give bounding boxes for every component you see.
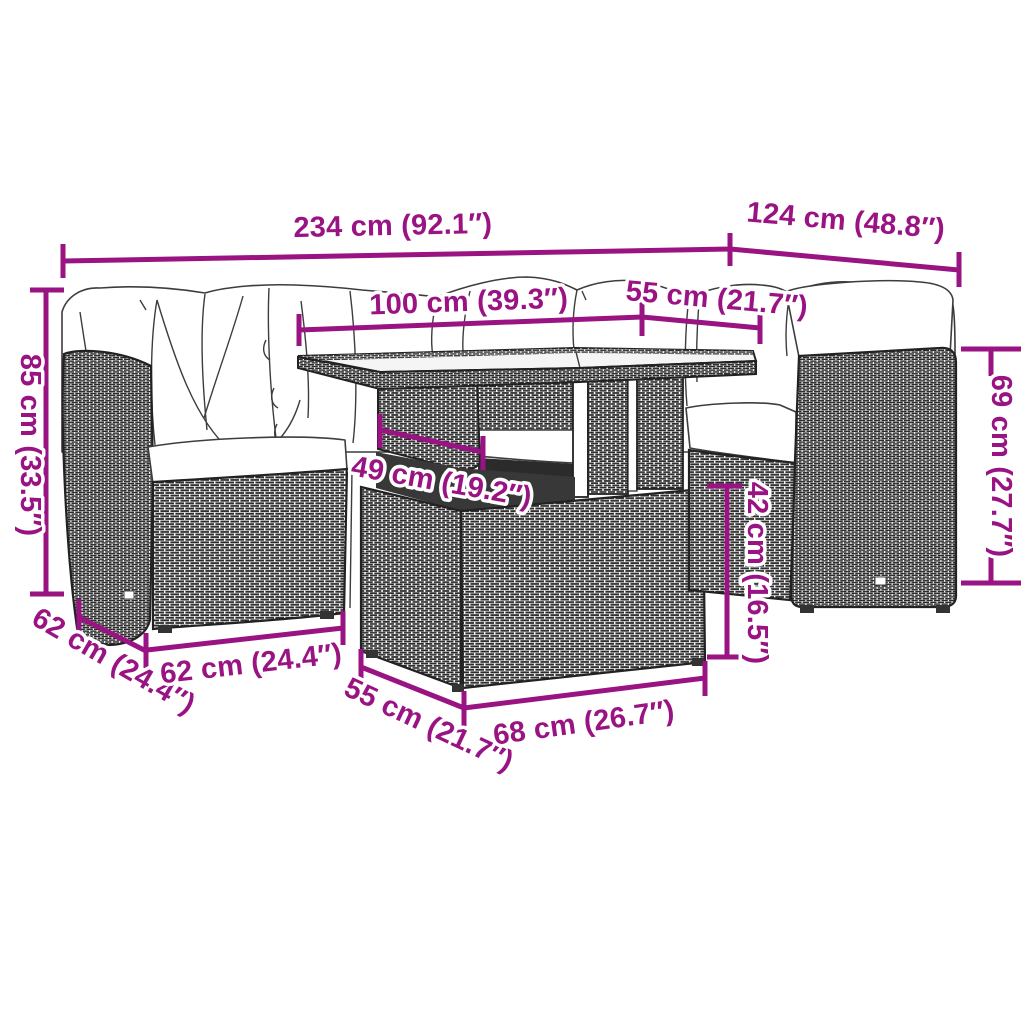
- svg-text:85 cm (33.5″): 85 cm (33.5″): [14, 354, 46, 537]
- svg-text:69 cm (27.7″): 69 cm (27.7″): [985, 375, 1017, 558]
- svg-text:42 cm (16.5″): 42 cm (16.5″): [741, 482, 773, 665]
- svg-text:234 cm (92.1″): 234 cm (92.1″): [293, 208, 493, 244]
